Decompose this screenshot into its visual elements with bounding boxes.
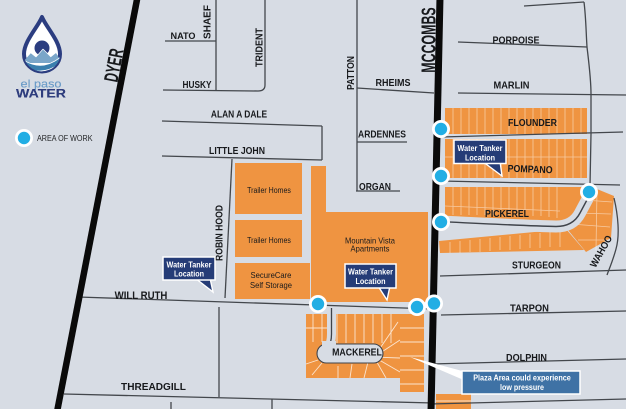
svg-text:Apartments: Apartments <box>351 244 390 253</box>
svg-text:ORGAN: ORGAN <box>359 181 391 192</box>
svg-text:STURGEON: STURGEON <box>512 260 561 271</box>
svg-text:FLOUNDER: FLOUNDER <box>508 116 557 128</box>
svg-text:Trailer Homes: Trailer Homes <box>247 186 291 196</box>
svg-text:Location: Location <box>356 276 386 286</box>
svg-text:Trailer Homes: Trailer Homes <box>247 236 291 246</box>
svg-text:PICKEREL: PICKEREL <box>485 208 529 219</box>
svg-text:low pressure: low pressure <box>500 382 545 392</box>
svg-text:MARLIN: MARLIN <box>494 80 530 91</box>
svg-text:SecureCare: SecureCare <box>251 271 292 280</box>
svg-text:LITTLE JOHN: LITTLE JOHN <box>209 145 265 156</box>
svg-text:THREADGILL: THREADGILL <box>121 382 186 393</box>
svg-text:ARDENNES: ARDENNES <box>358 129 406 140</box>
svg-text:DOLPHIN: DOLPHIN <box>506 353 547 364</box>
svg-text:Location: Location <box>465 153 495 163</box>
svg-text:Plaza Area could experience: Plaza Area could experience <box>473 373 571 383</box>
svg-text:PATTON: PATTON <box>345 56 357 90</box>
svg-text:Water Tanker: Water Tanker <box>458 143 503 153</box>
svg-text:ALAN A DALE: ALAN A DALE <box>211 109 267 120</box>
svg-text:AREA OF WORK: AREA OF WORK <box>37 133 93 143</box>
svg-text:HUSKY: HUSKY <box>183 79 212 90</box>
svg-text:RHEIMS: RHEIMS <box>376 78 411 90</box>
svg-text:Self Storage: Self Storage <box>250 281 292 290</box>
svg-text:MCCOMBS: MCCOMBS <box>417 7 440 72</box>
svg-text:Location: Location <box>174 269 204 279</box>
svg-text:PORPOISE: PORPOISE <box>493 35 540 47</box>
svg-text:NATO: NATO <box>171 31 196 41</box>
svg-text:TRIDENT: TRIDENT <box>254 28 266 67</box>
svg-text:POMPANO: POMPANO <box>507 162 552 175</box>
svg-text:WILL RUTH: WILL RUTH <box>115 290 168 302</box>
svg-text:MACKEREL: MACKEREL <box>332 346 382 358</box>
svg-text:Water Tanker: Water Tanker <box>348 267 393 277</box>
svg-text:TARPON: TARPON <box>510 303 549 314</box>
svg-text:SHAEF: SHAEF <box>203 5 214 39</box>
svg-text:ROBIN HOOD: ROBIN HOOD <box>214 205 226 261</box>
svg-text:WATER: WATER <box>16 87 67 100</box>
